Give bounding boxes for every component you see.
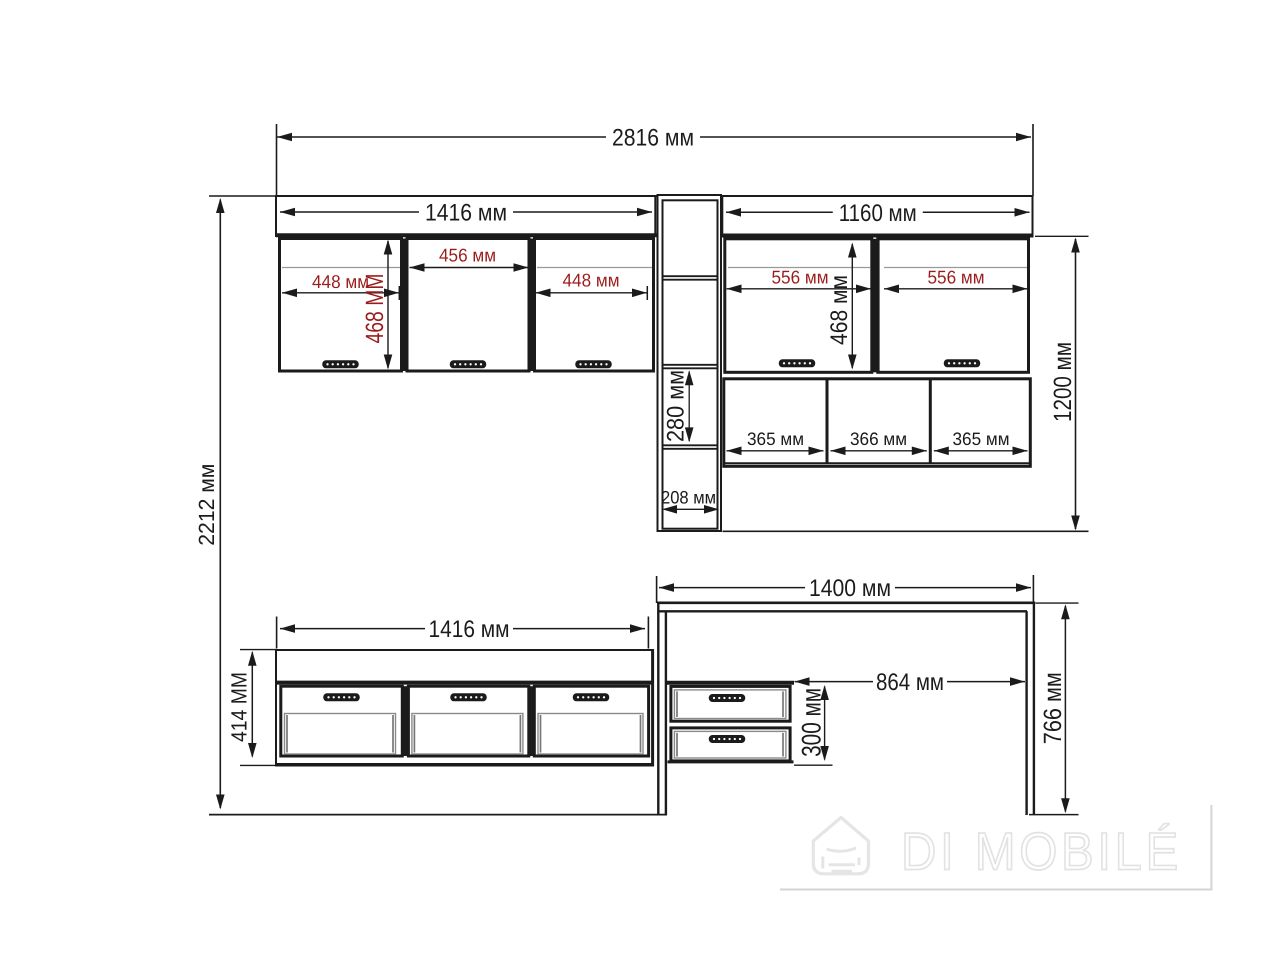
svg-text:280 мм: 280 мм [663,370,690,442]
svg-text:208 мм: 208 мм [661,487,716,507]
svg-text:766 мм: 766 мм [1039,672,1067,744]
svg-text:468 мм: 468 мм [826,275,853,345]
svg-text:366 мм: 366 мм [850,429,907,449]
svg-text:468 ММ: 468 ММ [361,274,389,344]
svg-text:556 мм: 556 мм [772,267,829,288]
svg-text:2212 мм: 2212 мм [194,464,219,546]
svg-text:365 мм: 365 мм [747,429,804,449]
svg-text:448 мм: 448 мм [563,270,620,291]
svg-text:DI MOBILÉ: DI MOBILÉ [901,823,1182,882]
svg-text:1416 мм: 1416 мм [429,616,510,643]
svg-text:456 мм: 456 мм [439,245,496,266]
svg-text:300 мм: 300 мм [797,688,827,757]
svg-text:2816 мм: 2816 мм [612,125,694,152]
svg-text:1416 мм: 1416 мм [425,200,507,227]
svg-text:1200 мм: 1200 мм [1049,342,1077,422]
svg-text:556 мм: 556 мм [928,267,985,288]
svg-text:414 ММ: 414 ММ [227,672,252,742]
svg-text:864 мм: 864 мм [876,669,944,696]
svg-text:365 мм: 365 мм [953,429,1010,449]
svg-text:1400 мм: 1400 мм [809,575,891,602]
svg-text:1160 мм: 1160 мм [839,200,917,227]
